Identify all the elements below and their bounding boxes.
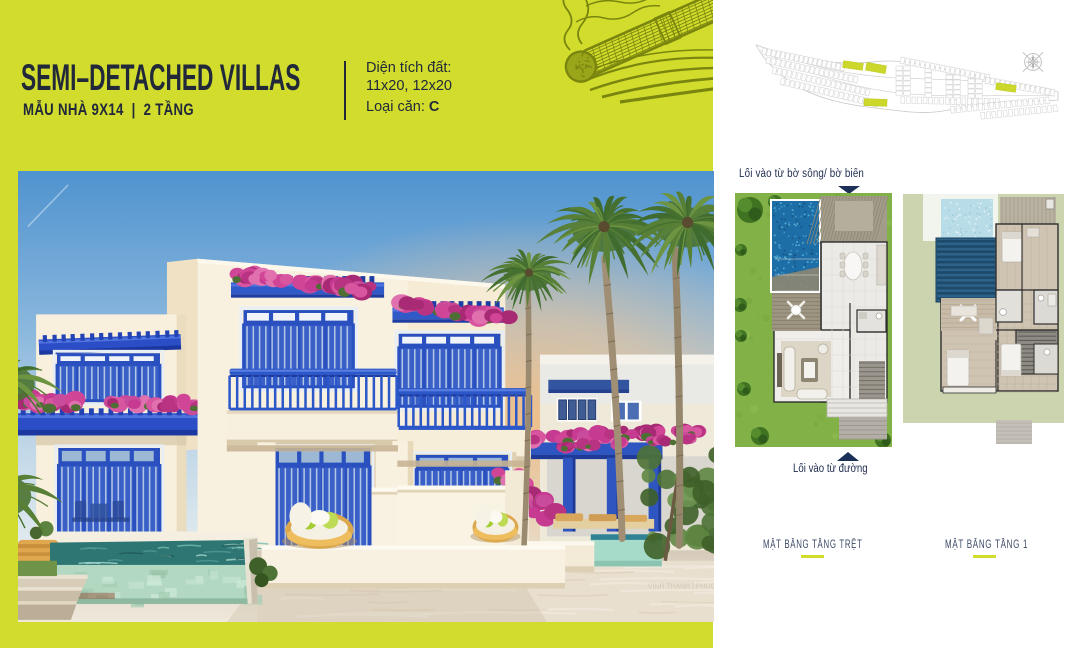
svg-text:VINH THANH | PHUONG: VINH THANH | PHUONG xyxy=(648,584,714,591)
